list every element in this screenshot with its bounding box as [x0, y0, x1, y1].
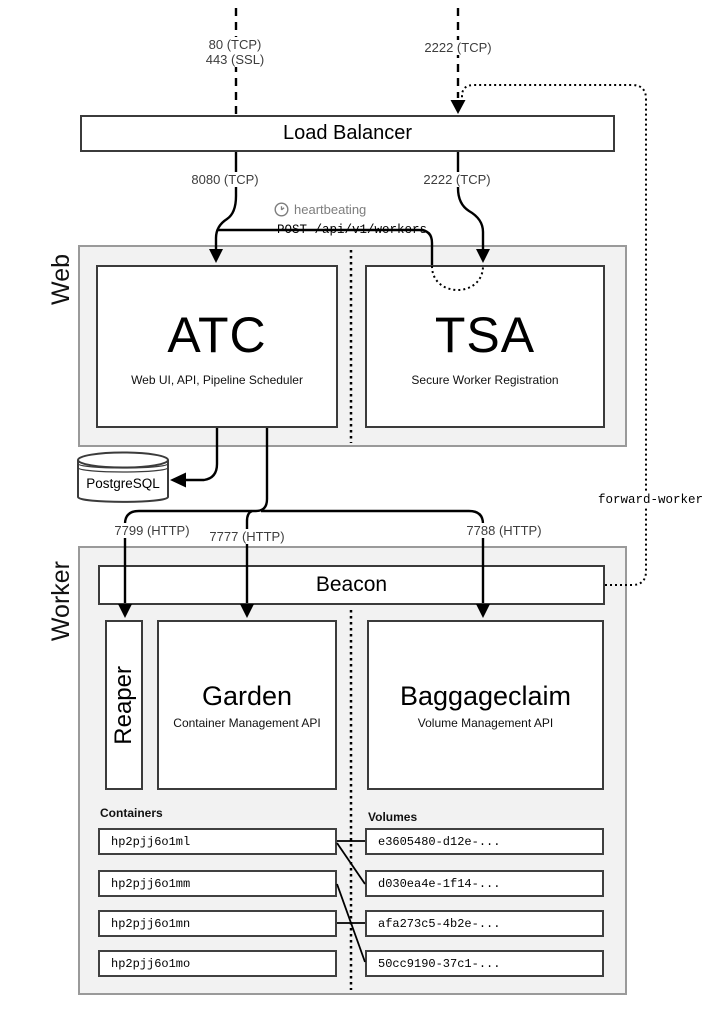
clock-icon [274, 202, 289, 217]
volume-row: afa273c5-4b2e-... [365, 910, 604, 937]
beacon-box: Beacon [98, 565, 605, 605]
container-row: hp2pjj6o1mo [98, 950, 337, 977]
beacon-label: Beacon [316, 573, 387, 597]
baggageclaim-title: Baggageclaim [400, 681, 571, 712]
volume-id: e3605480-d12e-... [378, 835, 500, 849]
volume-id: 50cc9190-37c1-... [378, 957, 500, 971]
ssh-port-label-top: 2222 (TCP) [412, 40, 504, 55]
volume-row: e3605480-d12e-... [365, 828, 604, 855]
atc-box: ATC Web UI, API, Pipeline Scheduler [96, 265, 338, 428]
reaper-port-label: 7799 (HTTP) [106, 523, 198, 538]
reaper-label: Reaper [110, 666, 138, 745]
architecture-diagram: Web Worker Load Balancer ATC Web UI, API… [0, 0, 722, 1032]
container-id: hp2pjj6o1ml [111, 835, 190, 849]
tsa-port-label: 2222 (TCP) [411, 172, 503, 187]
container-id: hp2pjj6o1mn [111, 917, 190, 931]
heartbeating-label: heartbeating [294, 202, 366, 217]
postgresql-label: PostgreSQL [76, 472, 170, 494]
arrowhead-into-postgresql [170, 473, 186, 488]
post-workers-label: POST /api/v1/workers [277, 223, 427, 237]
garden-box: Garden Container Management API [157, 620, 337, 790]
web-section-label: Web [44, 248, 78, 310]
load-balancer-label: Load Balancer [283, 122, 412, 145]
baggageclaim-box: Baggageclaim Volume Management API [367, 620, 604, 790]
garden-subtitle: Container Management API [173, 716, 320, 730]
arrowhead-into-load-balancer [451, 100, 466, 114]
garden-title: Garden [202, 681, 292, 712]
baggageclaim-subtitle: Volume Management API [418, 716, 553, 730]
atc-port-label: 8080 (TCP) [178, 172, 272, 187]
volume-row: 50cc9190-37c1-... [365, 950, 604, 977]
volume-id: afa273c5-4b2e-... [378, 917, 500, 931]
container-row: hp2pjj6o1ml [98, 828, 337, 855]
tsa-box: TSA Secure Worker Registration [365, 265, 605, 428]
reaper-box: Reaper [105, 620, 143, 790]
worker-section-label: Worker [44, 548, 78, 654]
container-row: hp2pjj6o1mm [98, 870, 337, 897]
tsa-subtitle: Secure Worker Registration [411, 373, 558, 387]
garden-port-label: 7777 (HTTP) [201, 529, 293, 544]
atc-subtitle: Web UI, API, Pipeline Scheduler [131, 373, 303, 387]
load-balancer-box: Load Balancer [80, 115, 615, 152]
forward-worker-label: forward-worker [596, 493, 705, 507]
tsa-title: TSA [435, 306, 535, 364]
heartbeating-annotation: heartbeating [274, 202, 366, 217]
containers-group-label: Containers [100, 806, 163, 820]
volumes-group-label: Volumes [368, 810, 417, 824]
container-id: hp2pjj6o1mm [111, 877, 190, 891]
baggageclaim-port-label: 7788 (HTTP) [458, 523, 550, 538]
volume-row: d030ea4e-1f14-... [365, 870, 604, 897]
http-port-label: 80 (TCP) 443 (SSL) [188, 37, 282, 67]
volume-id: d030ea4e-1f14-... [378, 877, 500, 891]
container-id: hp2pjj6o1mo [111, 957, 190, 971]
container-row: hp2pjj6o1mn [98, 910, 337, 937]
atc-title: ATC [167, 306, 266, 364]
